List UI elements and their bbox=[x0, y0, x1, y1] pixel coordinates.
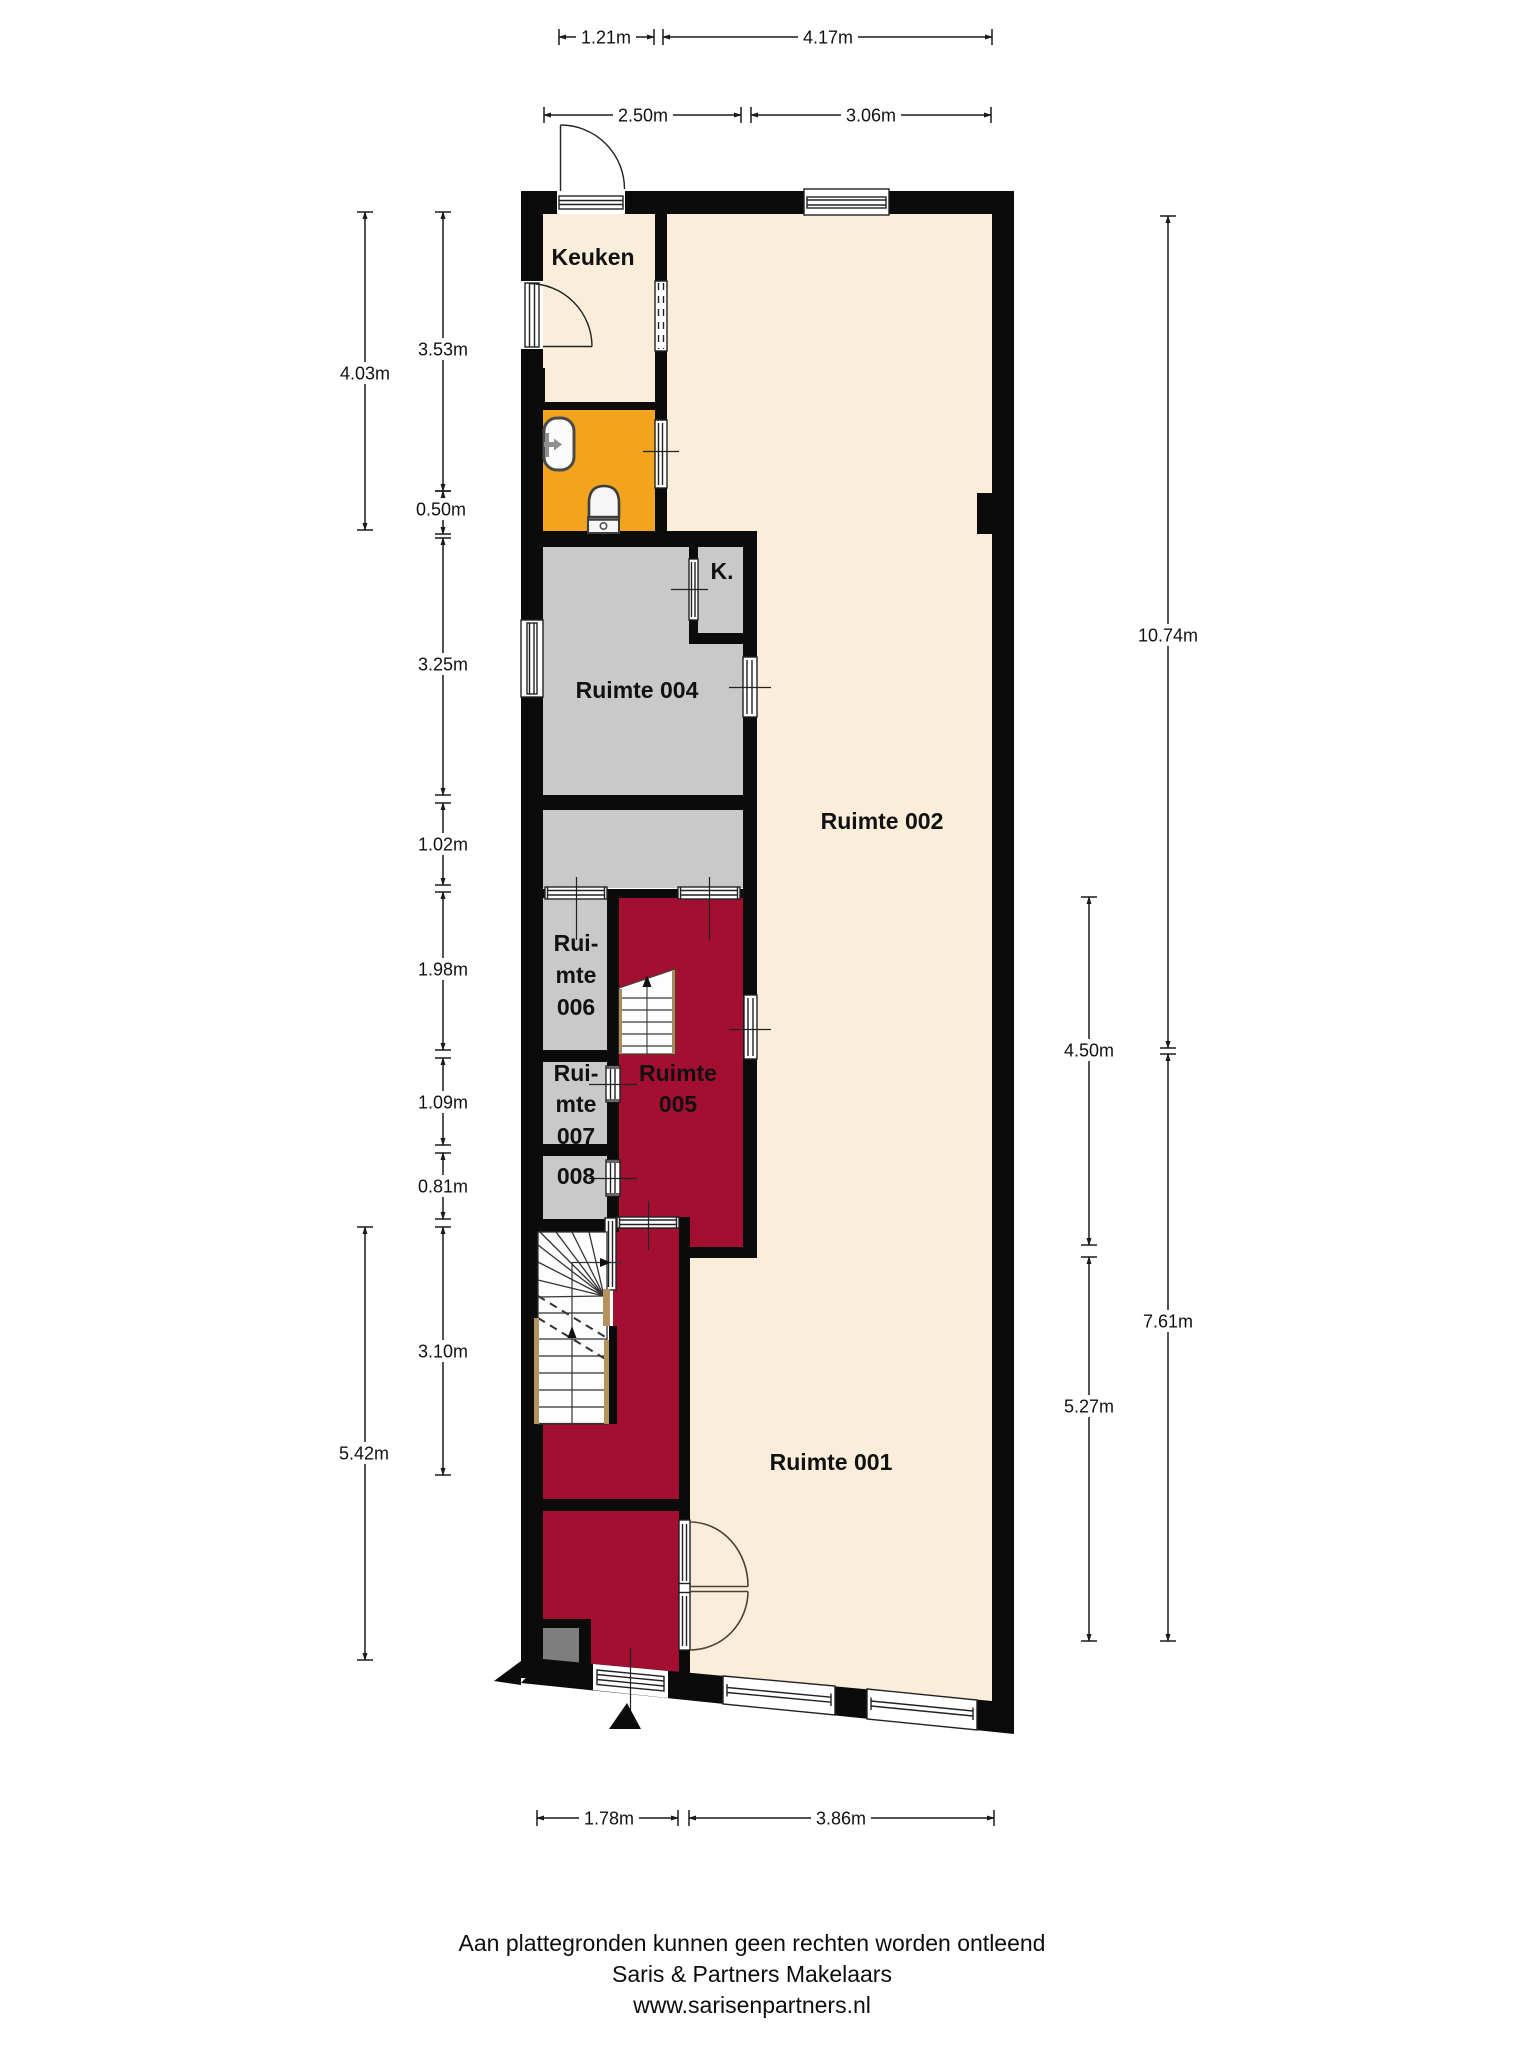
svg-text:4.17m: 4.17m bbox=[803, 28, 853, 48]
svg-text:3.86m: 3.86m bbox=[816, 1809, 866, 1829]
svg-text:0.50m: 0.50m bbox=[416, 500, 466, 520]
svg-text:Rui-: Rui- bbox=[554, 930, 599, 956]
svg-text:5.42m: 5.42m bbox=[339, 1444, 389, 1464]
svg-text:Ruimte 001: Ruimte 001 bbox=[770, 1449, 893, 1475]
svg-text:mte: mte bbox=[556, 962, 597, 988]
svg-text:007: 007 bbox=[557, 1123, 595, 1149]
svg-text:3.25m: 3.25m bbox=[418, 655, 468, 675]
svg-text:1.98m: 1.98m bbox=[418, 960, 468, 980]
svg-text:K.: K. bbox=[711, 558, 734, 584]
svg-text:005: 005 bbox=[659, 1091, 698, 1117]
svg-text:3.06m: 3.06m bbox=[846, 106, 896, 126]
svg-text:Keuken: Keuken bbox=[551, 244, 634, 270]
svg-text:Saris & Partners Makelaars: Saris & Partners Makelaars bbox=[612, 1961, 892, 1987]
svg-text:Ruimte: Ruimte bbox=[639, 1060, 717, 1086]
svg-text:2.50m: 2.50m bbox=[618, 106, 668, 126]
svg-text:1.09m: 1.09m bbox=[418, 1093, 468, 1113]
svg-text:4.03m: 4.03m bbox=[340, 364, 390, 384]
svg-text:Aan plattegronden kunnen geen: Aan plattegronden kunnen geen rechten wo… bbox=[459, 1930, 1046, 1956]
svg-text:1.02m: 1.02m bbox=[418, 835, 468, 855]
svg-text:006: 006 bbox=[557, 994, 595, 1020]
svg-text:0.81m: 0.81m bbox=[418, 1177, 468, 1197]
svg-text:5.27m: 5.27m bbox=[1064, 1397, 1114, 1417]
svg-text:4.50m: 4.50m bbox=[1064, 1041, 1114, 1061]
svg-text:mte: mte bbox=[556, 1091, 597, 1117]
svg-text:10.74m: 10.74m bbox=[1138, 626, 1198, 646]
svg-text:www.sarisenpartners.nl: www.sarisenpartners.nl bbox=[632, 1992, 871, 2018]
svg-text:Rui-: Rui- bbox=[554, 1060, 599, 1086]
svg-text:1.78m: 1.78m bbox=[584, 1809, 634, 1829]
svg-text:3.10m: 3.10m bbox=[418, 1342, 468, 1362]
svg-text:008: 008 bbox=[557, 1163, 596, 1189]
svg-text:3.53m: 3.53m bbox=[418, 340, 468, 360]
svg-text:Ruimte 002: Ruimte 002 bbox=[821, 808, 944, 834]
svg-text:Ruimte 004: Ruimte 004 bbox=[576, 677, 699, 703]
svg-text:1.21m: 1.21m bbox=[581, 28, 631, 48]
svg-text:7.61m: 7.61m bbox=[1143, 1312, 1193, 1332]
